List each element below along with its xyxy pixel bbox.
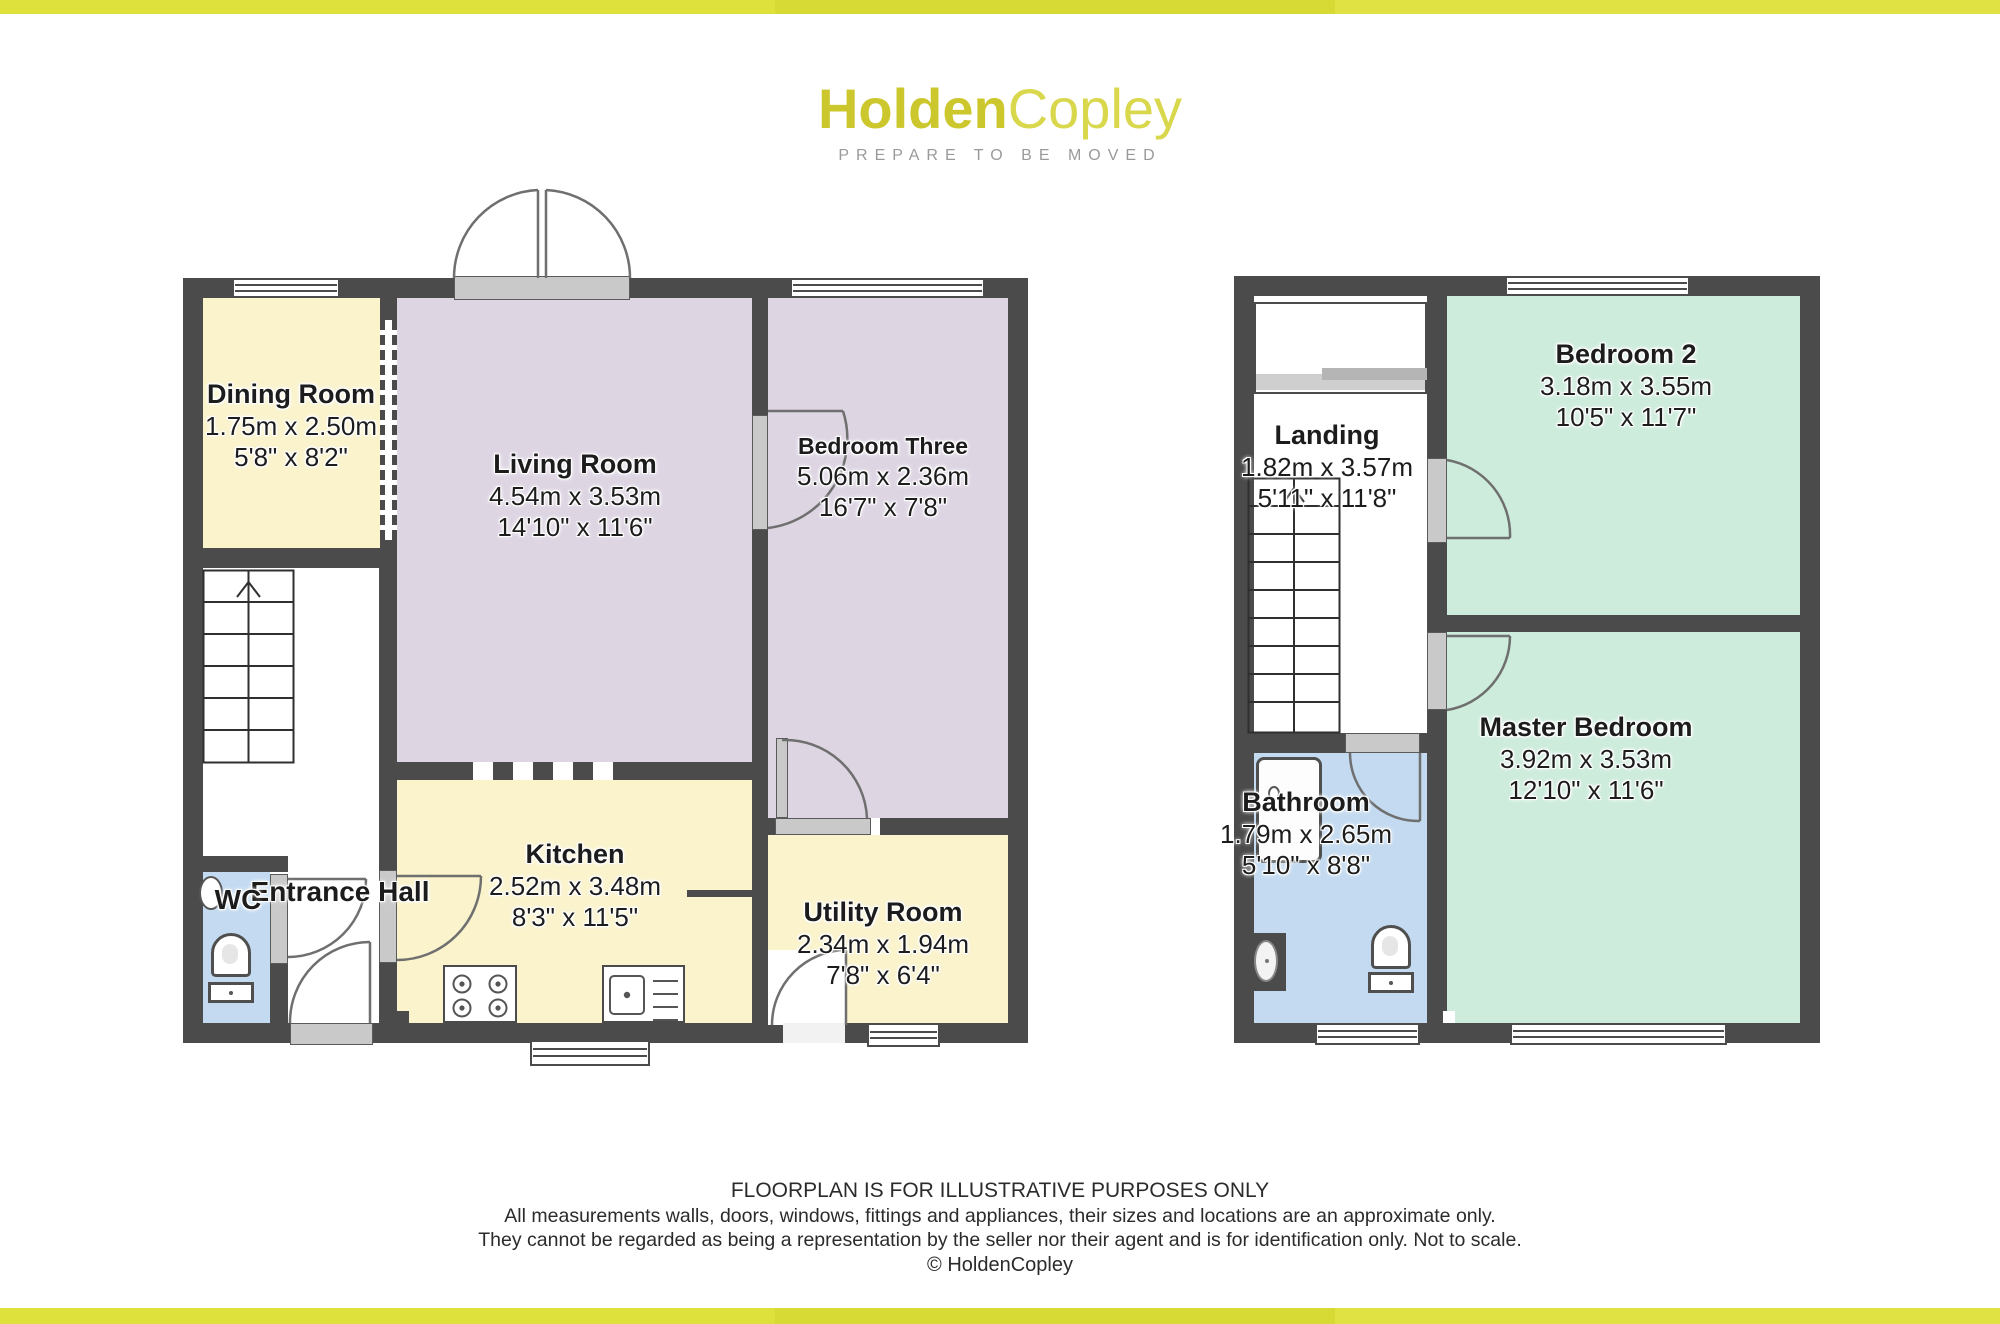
open-plan-divider (453, 762, 630, 780)
room-dim-imperial: 5'8" x 8'2" (205, 442, 377, 473)
disclaimer: FLOORPLAN IS FOR ILLUSTRATIVE PURPOSES O… (0, 1178, 2000, 1278)
bedroom-three-area (768, 298, 1008, 818)
room-name: Kitchen (489, 838, 661, 871)
room-label-living: Living Room 4.54m x 3.53m 14'10" x 11'6" (489, 448, 661, 543)
door-opening (783, 1023, 845, 1043)
room-dim-imperial: 10'5" x 11'7" (1540, 402, 1712, 433)
top-brand-bar (0, 0, 2000, 14)
brand-name-primary: Holden (818, 77, 1008, 140)
wall-segment (183, 1023, 290, 1043)
brand-wordmark: HoldenCopley (0, 76, 2000, 141)
wall-notch (1443, 1011, 1455, 1023)
brand-name-secondary: Copley (1008, 77, 1182, 140)
window (1505, 276, 1690, 296)
wall-segment (270, 964, 288, 1023)
room-dim-imperial: 5'10" x 8'8" (1220, 850, 1392, 881)
room-dim-metric: 1.82m x 3.57m (1241, 452, 1413, 483)
wall-segment (183, 278, 203, 1043)
room-name: Bedroom 2 (1540, 338, 1712, 371)
bar-segment (1335, 0, 2000, 14)
room-name: Bathroom (1220, 786, 1392, 819)
first-floor-plan: Landing 1.82m x 3.57m 5'11" x 11'8" Bedr… (1234, 276, 1820, 1043)
room-label-bathroom: Bathroom 1.79m x 2.65m 5'10" x 8'8" (1220, 786, 1392, 881)
room-dim-metric: 4.54m x 3.53m (489, 481, 661, 512)
room-name: Living Room (489, 448, 661, 481)
window (1510, 1023, 1727, 1045)
open-plan-divider (380, 320, 397, 540)
bar-segment (0, 1308, 775, 1324)
room-name: Bedroom Three (797, 431, 969, 461)
wall-segment (1254, 733, 1345, 753)
room-name: Master Bedroom (1479, 711, 1692, 744)
door-panel (1427, 458, 1447, 543)
room-dim-metric: 5.06m x 2.36m (797, 461, 969, 492)
wall-segment (1427, 710, 1447, 1023)
hob-icon (443, 965, 517, 1023)
room-label-bedroom-three: Bedroom Three 5.06m x 2.36m 16'7" x 7'8" (797, 431, 969, 523)
wall-segment (880, 818, 1008, 835)
wall-segment (380, 278, 397, 320)
room-dim-imperial: 8'3" x 11'5" (489, 902, 661, 933)
room-dim-metric: 3.18m x 3.55m (1540, 371, 1712, 402)
door-threshold (775, 818, 871, 835)
cupboard-slat (1322, 368, 1427, 380)
room-label-entrance-hall: Entrance Hall (251, 876, 430, 908)
room-label-master-bedroom: Master Bedroom 3.92m x 3.53m 12'10" x 11… (1479, 711, 1692, 806)
wall-segment (379, 568, 397, 870)
brand-logo: HoldenCopley PREPARE TO BE MOVED (0, 76, 2000, 165)
toilet-base (208, 982, 254, 1003)
room-name: Landing (1241, 419, 1413, 452)
french-door-threshold (454, 276, 630, 300)
toilet-icon (208, 933, 256, 1003)
room-dim-imperial: 14'10" x 11'6" (489, 512, 661, 543)
room-dim-metric: 1.75m x 2.50m (205, 411, 377, 442)
room-name: Utility Room (797, 896, 969, 929)
sink-unit-icon (602, 965, 685, 1023)
room-label-landing: Landing 1.82m x 3.57m 5'11" x 11'8" (1241, 419, 1413, 514)
wall-segment (1008, 278, 1028, 1043)
disclaimer-line: They cannot be regarded as being a repre… (0, 1228, 2000, 1252)
wall-segment (397, 762, 453, 780)
window (790, 278, 985, 298)
room-dim-metric: 2.34m x 1.94m (797, 929, 969, 960)
wall-stub (395, 1011, 409, 1023)
toilet-bowl (1371, 925, 1411, 969)
wall-segment (1427, 615, 1800, 632)
wall-segment (752, 298, 768, 415)
room-name: Dining Room (205, 378, 377, 411)
room-dim-imperial: 7'8" x 6'4" (797, 960, 969, 991)
toilet-base (1368, 972, 1414, 993)
brand-tagline: PREPARE TO BE MOVED (0, 147, 2000, 165)
room-label-utility: Utility Room 2.34m x 1.94m 7'8" x 6'4" (797, 896, 969, 991)
front-door-threshold (290, 1023, 373, 1045)
copyright: © HoldenCopley (0, 1252, 2000, 1278)
room-dim-metric: 2.52m x 3.48m (489, 871, 661, 902)
ground-floor-plan: Dining Room 1.75m x 2.50m 5'8" x 8'2" Li… (183, 278, 1028, 1043)
wall-segment (1420, 733, 1447, 753)
wall-segment (752, 530, 768, 1023)
wall-segment (183, 548, 397, 568)
door-panel (752, 415, 768, 530)
door-panel (1427, 632, 1447, 710)
toilet-bowl (211, 933, 251, 977)
wall-segment (630, 762, 752, 780)
master-bedroom-area (1447, 632, 1800, 1023)
door-panel (776, 738, 788, 818)
staircase (1248, 478, 1340, 733)
floorplan-page: HoldenCopley PREPARE TO BE MOVED (0, 0, 2000, 1324)
room-dim-imperial: 5'11" x 11'8" (1241, 483, 1413, 514)
room-dim-metric: 1.79m x 2.65m (1220, 819, 1392, 850)
wall-segment (1234, 276, 1254, 1043)
bar-segment (0, 0, 775, 14)
bar-segment (1335, 1308, 2000, 1324)
staircase (203, 570, 294, 763)
window (867, 1023, 940, 1047)
stairs-up-arrow-icon (237, 582, 260, 650)
room-label-bedroom-2: Bedroom 2 3.18m x 3.55m 10'5" x 11'7" (1540, 338, 1712, 433)
window (1315, 1023, 1420, 1045)
wall-segment (687, 890, 752, 897)
bar-segment (775, 1308, 1335, 1324)
room-label-wc: WC (215, 884, 262, 916)
bar-segment (775, 0, 1335, 14)
door-threshold (1345, 733, 1420, 753)
toilet-icon (1368, 925, 1414, 993)
disclaimer-title: FLOORPLAN IS FOR ILLUSTRATIVE PURPOSES O… (0, 1178, 2000, 1204)
basin-icon (1248, 933, 1286, 991)
bottom-brand-bar (0, 1308, 2000, 1324)
room-label-dining: Dining Room 1.75m x 2.50m 5'8" x 8'2" (205, 378, 377, 473)
window (232, 278, 340, 298)
window (530, 1040, 650, 1066)
wall-segment (1800, 276, 1820, 1043)
disclaimer-line: All measurements walls, doors, windows, … (0, 1204, 2000, 1228)
room-dim-metric: 3.92m x 3.53m (1479, 744, 1692, 775)
wall-segment (1427, 296, 1447, 458)
room-dim-imperial: 16'7" x 7'8" (797, 492, 969, 523)
room-dim-imperial: 12'10" x 11'6" (1479, 775, 1692, 806)
wall-segment (183, 856, 288, 872)
room-label-kitchen: Kitchen 2.52m x 3.48m 8'3" x 11'5" (489, 838, 661, 933)
